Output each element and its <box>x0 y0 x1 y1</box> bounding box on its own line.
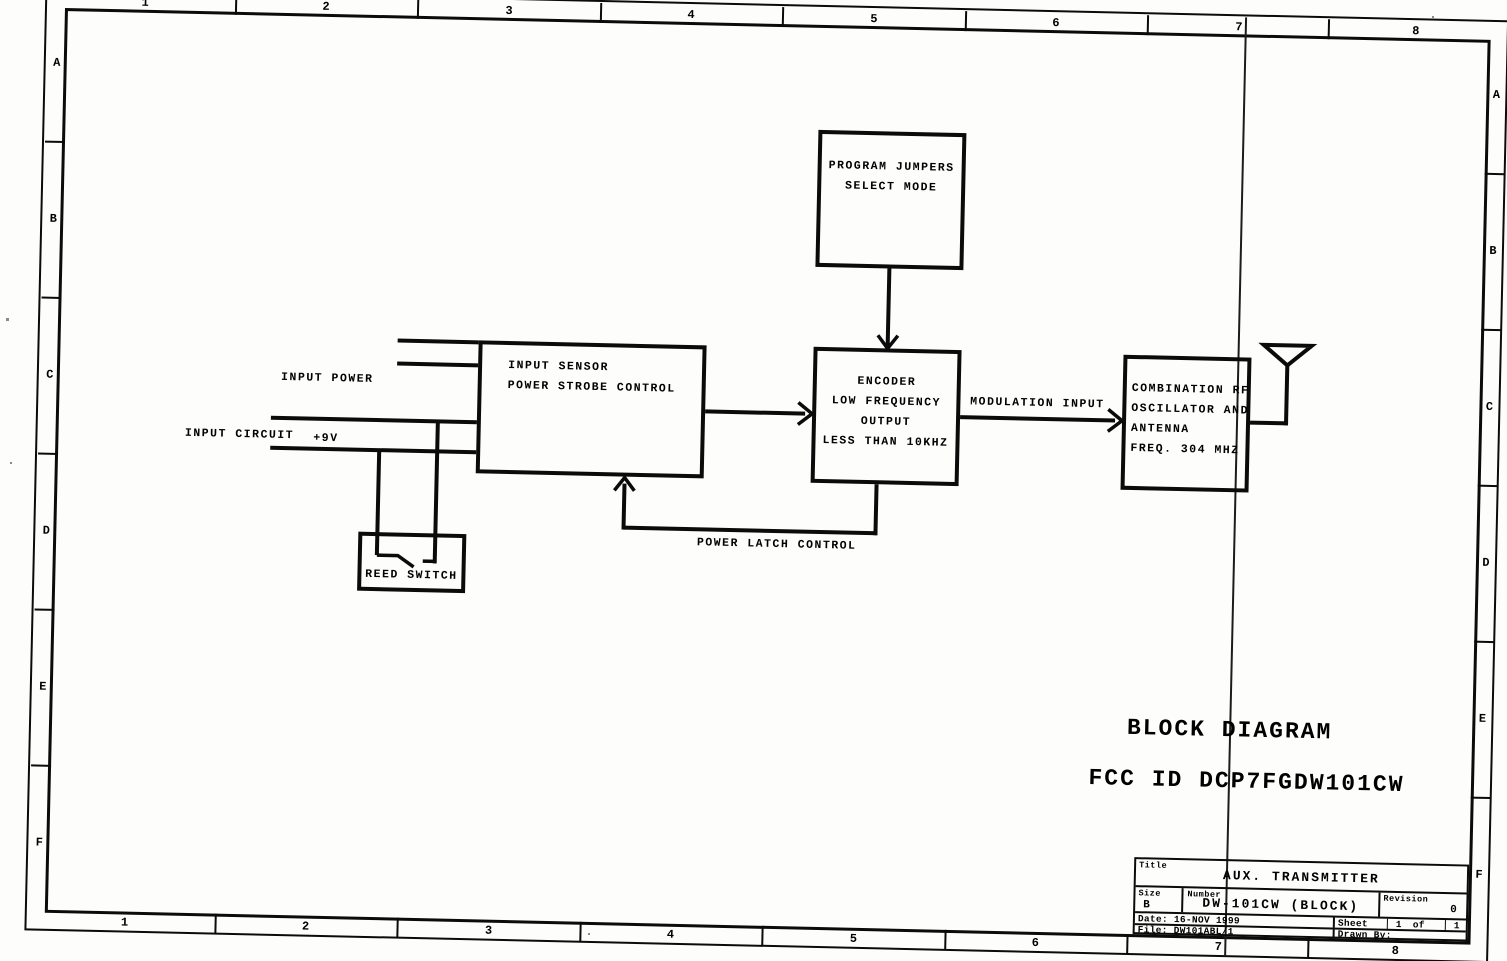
zone-tick <box>1481 329 1501 331</box>
zone-tick <box>45 141 65 143</box>
file-value: File: DW101ABL/1 <box>1138 924 1234 937</box>
revision-label: Revision <box>1383 894 1428 905</box>
zone-col-label: 3 <box>478 920 498 940</box>
block-program-jumpers: PROGRAM JUMPERS SELECT MODE <box>815 130 966 270</box>
zone-row-label: C <box>40 365 60 385</box>
block-text-line: OSCILLATOR AND <box>1131 399 1246 422</box>
sheet-outer-border <box>24 0 1507 961</box>
zone-row-label: A <box>47 53 67 73</box>
block-reed-switch: REED SWITCH <box>357 532 466 593</box>
zone-tick <box>35 608 55 610</box>
wire-rf-to-antenna <box>1250 421 1288 426</box>
block-text-line: POWER STROBE CONTROL <box>507 376 701 400</box>
title-block: Title AUX. TRANSMITTER Size B Number DW-… <box>1133 857 1470 941</box>
sheet-total: 1 <box>1445 920 1460 931</box>
block-text-line: ANTENNA <box>1131 419 1246 442</box>
label-line: INPUT POWER <box>260 367 395 390</box>
title-block-divider <box>1378 893 1381 917</box>
zone-row-label: C <box>1479 397 1499 417</box>
zone-row-label: F <box>1469 865 1489 885</box>
zone-col-label: 2 <box>295 916 315 936</box>
zone-col-label: 6 <box>1025 933 1045 953</box>
title-block-divider <box>1333 930 1335 939</box>
scan-speck <box>10 462 12 464</box>
zone-tick <box>42 297 62 299</box>
modulation-input-label: MODULATION INPUT <box>959 392 1115 415</box>
revision-value: 0 <box>1450 904 1457 916</box>
zone-tick <box>1478 485 1498 487</box>
scanned-page: 1 2 3 4 5 6 7 8 1 2 3 4 5 6 7 8 A B C D … <box>0 0 1507 961</box>
block-encoder: ENCODER LOW FREQUENCY OUTPUT LESS THAN 1… <box>811 347 962 486</box>
sheet-page: 1 <box>1387 919 1402 930</box>
zone-tick <box>1471 797 1491 799</box>
zone-tick <box>1474 641 1494 643</box>
zone-row-label: B <box>1483 241 1503 261</box>
drawn-by-label: Drawn By: <box>1338 929 1392 941</box>
zone-row-label: F <box>29 832 49 852</box>
zone-row-label: B <box>43 209 63 229</box>
zone-tick <box>38 453 58 455</box>
zone-tick <box>1485 173 1505 175</box>
sheet-label: Sheet <box>1338 918 1368 930</box>
block-rf-oscillator: COMBINATION RF OSCILLATOR AND ANTENNA FR… <box>1121 355 1252 493</box>
drawing-sheet: 1 2 3 4 5 6 7 8 1 2 3 4 5 6 7 8 A B C D … <box>45 8 1491 945</box>
size-label: Size <box>1138 888 1161 898</box>
zone-col-label: 4 <box>660 925 680 945</box>
block-text-line: COMBINATION RF <box>1132 379 1247 402</box>
size-value: B <box>1143 899 1150 911</box>
zone-row-label: A <box>1486 85 1506 105</box>
zone-row-label: D <box>36 520 56 540</box>
scan-speck <box>6 318 9 321</box>
block-text-line: LESS THAN 10KHZ <box>815 431 955 454</box>
number-value: DW-101CW (BLOCK) <box>1183 895 1378 914</box>
zone-tick <box>31 764 51 766</box>
zone-col-label: 4 <box>681 5 701 25</box>
zone-col-label: 2 <box>316 0 336 17</box>
block-text-line: FREQ. 304 MHZ <box>1130 439 1245 462</box>
zone-col-label: 8 <box>1385 941 1405 961</box>
zone-col-label: 3 <box>499 1 519 21</box>
zone-row-label: E <box>1472 709 1492 729</box>
title-block-divider <box>1333 918 1335 928</box>
zone-col-label: 5 <box>843 929 863 949</box>
sheet-of: of <box>1413 919 1425 930</box>
zone-row-label: E <box>33 676 53 696</box>
block-text-line: REED SWITCH <box>361 565 461 587</box>
zone-col-label: 5 <box>864 9 884 29</box>
zone-col-label: 8 <box>1406 21 1426 41</box>
block-text-line: PROGRAM JUMPERS <box>821 156 961 179</box>
block-input-sensor: INPUT SENSOR POWER STROBE CONTROL <box>476 340 707 478</box>
input-circuit-label: INPUT CIRCUIT <box>164 423 314 446</box>
zone-col-label: 1 <box>114 912 134 932</box>
block-text-line: LOW FREQUENCY <box>816 391 956 414</box>
input-power-label: INPUT POWER +9V <box>257 327 396 490</box>
power-latch-label: POWER LATCH CONTROL <box>694 533 859 557</box>
zone-col-label: 6 <box>1046 13 1066 33</box>
block-text-line: SELECT MODE <box>821 176 961 199</box>
zone-col-label: 1 <box>135 0 155 13</box>
zone-row-label: D <box>1476 553 1496 573</box>
title-value: AUX. TRANSMITTER <box>1136 866 1467 888</box>
